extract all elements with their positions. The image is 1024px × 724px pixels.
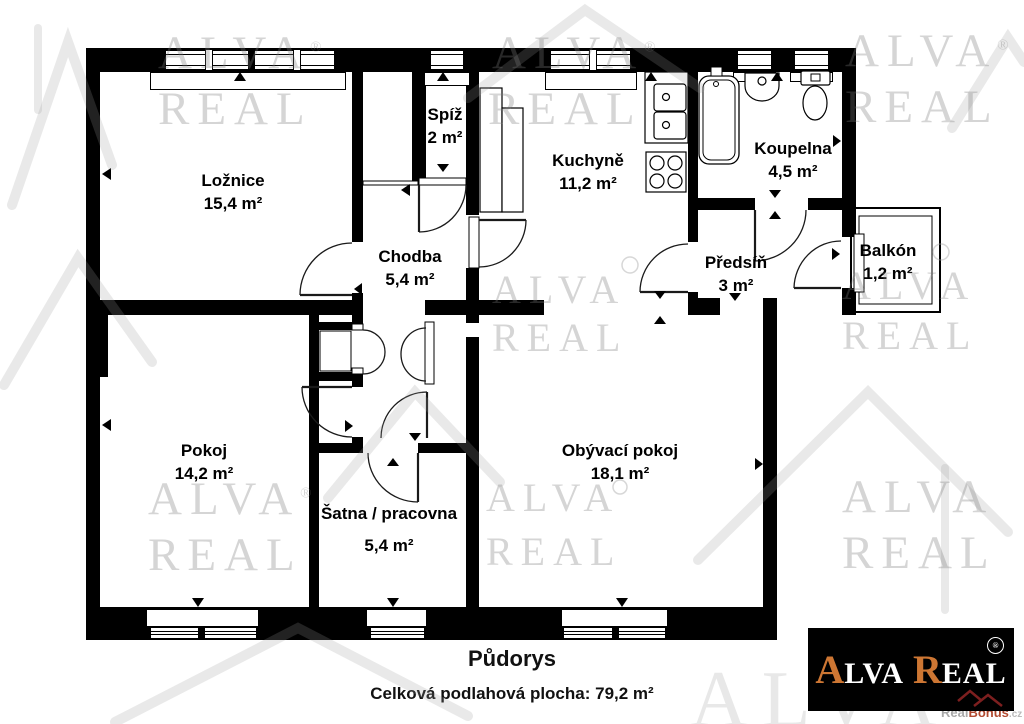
room-label-koupelna: Koupelna 4,5 m² [723, 138, 863, 184]
corridor-partition [425, 322, 434, 384]
window-room-2 [204, 627, 257, 639]
room-label-loznice: Ložnice 15,4 m² [153, 170, 313, 216]
door-corridor-inner [381, 392, 427, 438]
room-label-pokoj: Pokoj 14,2 m² [134, 440, 274, 486]
wall-bedroom-right-b [352, 293, 363, 305]
wall-corridor-left-a [352, 315, 363, 324]
wall-corridor-left-b [352, 368, 363, 387]
wall-kitchen-bathroom [688, 48, 698, 210]
door-bifold-right [401, 328, 426, 381]
window-sill [545, 72, 637, 90]
window-bathroom-1 [737, 50, 772, 70]
logo-house-icon [956, 685, 1008, 709]
bifold-frame [352, 324, 363, 330]
wall-niche-top [319, 322, 352, 330]
wall-hall-livingroom-a [698, 298, 720, 315]
wall-hall-left-a [688, 210, 698, 242]
window-sill [790, 72, 833, 82]
watermark-text: REAL [845, 84, 1000, 131]
room-label-balkon: Balkón 1,2 m² [828, 240, 948, 286]
wall-bathroom-bottom-a [688, 198, 755, 210]
wall-room-right [309, 315, 319, 607]
kitchen-sink-icon [654, 84, 686, 139]
wall-outer-left [86, 48, 100, 640]
watermark-text: REAL [158, 86, 313, 133]
watermark-text: REAL [842, 316, 978, 356]
wall-kitchen-left-c [466, 337, 479, 453]
door-kitchen [479, 220, 526, 267]
wall-pier [100, 315, 108, 377]
door-pantry [419, 185, 466, 232]
door-bifold-left [363, 330, 385, 374]
wall-closet-top-left [309, 443, 363, 453]
room-label-predsin: Předsíň 3 m² [666, 252, 806, 298]
watermark-text: REAL [486, 532, 622, 572]
room-label-obyvaci: Obývací pokoj 18,1 m² [540, 440, 700, 486]
window-sill [424, 72, 470, 86]
window-sill [366, 609, 427, 627]
registered-emblem-icon: ® [987, 637, 1004, 654]
wall-bathroom-bottom-b [808, 198, 856, 210]
room-label-satna: Šatna / pracovna 5,4 m² [309, 503, 469, 558]
window-kitchen [550, 50, 631, 70]
window-workroom [370, 627, 425, 639]
window-sill [150, 72, 346, 90]
alva-real-logo: ALVAREAL ® [808, 628, 1014, 711]
watermark-text: REAL [842, 530, 997, 577]
watermark-text: REAL [148, 532, 303, 579]
room-label-chodba: Chodba 5,4 m² [345, 246, 475, 292]
corridor-nook-line [363, 181, 418, 185]
watermark-text: REAL [488, 86, 643, 133]
window-sill [146, 609, 259, 627]
corridor-closet-niche [320, 331, 351, 371]
window-sill [733, 72, 776, 82]
watermark-text: ALVA® [845, 28, 1009, 75]
wall-livingroom-right [763, 298, 777, 640]
window-bathroom-2 [794, 50, 829, 70]
window-pantry [430, 50, 464, 70]
wall-outer-right-lower [842, 288, 856, 315]
wall-bedroom-right-a [352, 72, 363, 242]
room-label-spiz: Spíž 2 m² [405, 104, 485, 150]
wall-bedroom-room-divider [86, 300, 363, 315]
wall-hall-livingroom-b [766, 298, 777, 315]
window-livingroom-1 [563, 627, 613, 639]
watermark-text: ALVA [842, 474, 994, 521]
pantry-door-threshold [419, 178, 466, 185]
wall-corridor-right-top [425, 300, 479, 315]
door-workroom [368, 453, 418, 502]
window-bedroom-1 [165, 50, 249, 70]
window-room-1 [150, 627, 199, 639]
window-bedroom-2 [254, 50, 335, 70]
watermark-text: REAL [492, 318, 628, 358]
window-sill [561, 609, 668, 627]
window-livingroom-2 [618, 627, 666, 639]
floor-plan: ALVA® REAL ALVA® REAL ALVA® REAL ALVA RE… [0, 0, 1024, 724]
room-label-kuchyne: Kuchyně 11,2 m² [518, 150, 658, 196]
